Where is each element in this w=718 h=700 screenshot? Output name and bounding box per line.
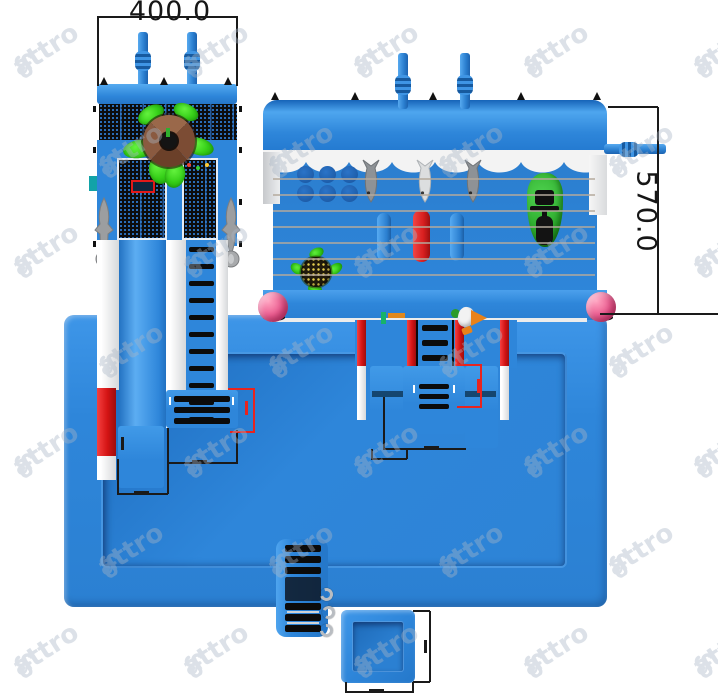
string-line xyxy=(273,210,595,212)
tie-tick xyxy=(239,106,242,112)
slide-rail-red xyxy=(97,388,116,458)
detail-line xyxy=(371,449,373,459)
red-detail-line xyxy=(480,364,482,408)
slide-rail-red xyxy=(500,320,509,366)
detail-line xyxy=(371,458,407,460)
ladder-rung xyxy=(189,383,214,388)
side-platform-left xyxy=(370,366,403,448)
ladder-edge xyxy=(452,320,454,368)
dimension-tick xyxy=(424,640,427,653)
dimension-line xyxy=(413,610,430,612)
small-pool-water xyxy=(352,621,404,672)
ladder-rung xyxy=(422,325,448,331)
string-line xyxy=(273,194,595,196)
hanging-fish-icon xyxy=(361,158,381,204)
dimension-line xyxy=(657,107,659,315)
pole-knot xyxy=(395,75,411,95)
slide-lane xyxy=(119,240,166,428)
obstacle-roller-red xyxy=(413,210,430,262)
detail-tick xyxy=(121,437,124,450)
slide-rail-left xyxy=(97,240,119,390)
playhouse-front-wall xyxy=(263,290,607,320)
red-detail-line xyxy=(253,388,255,433)
obstacle-roller-blue xyxy=(377,213,391,261)
dimension-line xyxy=(412,682,414,692)
tree-ring-icon xyxy=(143,115,195,167)
ladder-edge xyxy=(416,320,418,368)
detail-tick xyxy=(424,446,439,449)
tie-cone-icon xyxy=(160,77,168,85)
dimension-line xyxy=(600,313,718,315)
ladder-rung xyxy=(189,315,214,320)
detail-line xyxy=(167,428,169,494)
corner-ball xyxy=(586,292,616,322)
stepping-stone xyxy=(297,166,314,183)
detail-line xyxy=(236,430,238,463)
slide-rail-tip xyxy=(97,456,116,480)
tie-cone-icon xyxy=(517,92,525,100)
inflatable-waterpark-drawing: 400.0 570.0 xyxy=(0,0,718,700)
slide-rail-red xyxy=(357,320,366,366)
tie-cone-icon xyxy=(593,92,601,100)
ladder-rung xyxy=(189,281,214,286)
tie-tick xyxy=(93,147,96,153)
pole-knot xyxy=(184,51,200,71)
ladder-rung xyxy=(189,332,214,337)
curtain-right xyxy=(589,155,607,215)
entrance-marker xyxy=(131,180,155,193)
red-detail-line xyxy=(228,388,255,390)
string-line xyxy=(273,226,595,228)
hanging-fish-icon xyxy=(463,158,483,204)
string-line xyxy=(273,178,595,180)
dimension-line xyxy=(97,16,99,86)
pole-knot xyxy=(135,51,151,71)
ladder-rung xyxy=(189,400,214,405)
red-detail-line xyxy=(457,406,482,408)
center-platform xyxy=(403,366,465,434)
slide-rail-red xyxy=(407,320,416,366)
ladder-rung xyxy=(189,298,214,303)
detail-line xyxy=(383,397,385,449)
slide-rail-white xyxy=(500,366,509,420)
tree-center-sprout xyxy=(166,128,170,137)
turtle-shell-icon xyxy=(301,257,331,287)
dimension-line xyxy=(413,681,430,683)
jetski-seat xyxy=(536,216,553,245)
dimension-line xyxy=(608,106,658,108)
dimension-line xyxy=(98,16,238,18)
dimension-line xyxy=(236,16,238,86)
ladder-rung xyxy=(189,247,214,252)
stepping-stone xyxy=(341,166,358,183)
ladder-rung xyxy=(189,417,214,422)
jetski-vent xyxy=(535,190,554,205)
red-detail-tick xyxy=(245,401,248,415)
climbing-panel-right xyxy=(182,158,218,240)
detail-tick xyxy=(192,460,207,463)
orange-marker xyxy=(388,313,404,318)
ladder-rung xyxy=(189,366,214,371)
tie-cone-icon xyxy=(224,77,232,85)
red-detail-line xyxy=(230,431,255,433)
platform-shadow xyxy=(372,391,403,397)
tie-cone-icon xyxy=(100,77,108,85)
corner-ball xyxy=(258,292,288,322)
detail-line xyxy=(117,459,119,494)
tie-tick xyxy=(93,106,96,112)
ladder-rung xyxy=(189,349,214,354)
ladder-rung xyxy=(422,355,448,361)
canopy-scallop-edge xyxy=(263,150,607,178)
slide-rail-red xyxy=(455,320,464,366)
tie-cone-icon xyxy=(351,92,359,100)
red-detail-line xyxy=(458,364,482,366)
parrot-beak xyxy=(471,310,487,326)
climbing-hold xyxy=(187,163,191,167)
tower-top-wall xyxy=(97,84,237,104)
green-marker xyxy=(381,314,386,324)
tie-cone-icon xyxy=(429,92,437,100)
ladder-rung xyxy=(422,340,448,346)
red-detail-tick xyxy=(477,379,480,393)
teal-attachment xyxy=(89,176,97,191)
tie-cone-icon xyxy=(271,92,279,100)
pole-knot xyxy=(457,75,473,95)
tie-tick xyxy=(239,147,242,153)
detail-tick xyxy=(134,491,149,494)
climbing-hold xyxy=(205,163,209,167)
obstacle-roller-blue xyxy=(450,213,464,261)
width-dimension-label: 400.0 xyxy=(117,0,223,27)
hanging-fish-icon xyxy=(415,158,435,204)
ladder-rung xyxy=(189,264,214,269)
detail-line xyxy=(406,449,408,459)
step-platform xyxy=(166,390,238,428)
pool-entry-ladder xyxy=(276,539,328,637)
string-line xyxy=(273,242,595,244)
playhouse xyxy=(263,100,607,320)
climbing-hold xyxy=(196,166,200,170)
dimension-line xyxy=(345,682,347,692)
slide-rail-white xyxy=(357,366,366,420)
string-line xyxy=(273,258,595,260)
landing-platform xyxy=(118,426,164,488)
dimension-tick xyxy=(369,689,384,692)
string-line xyxy=(273,274,595,276)
dimension-line xyxy=(429,611,431,682)
stepping-stone xyxy=(319,166,336,183)
